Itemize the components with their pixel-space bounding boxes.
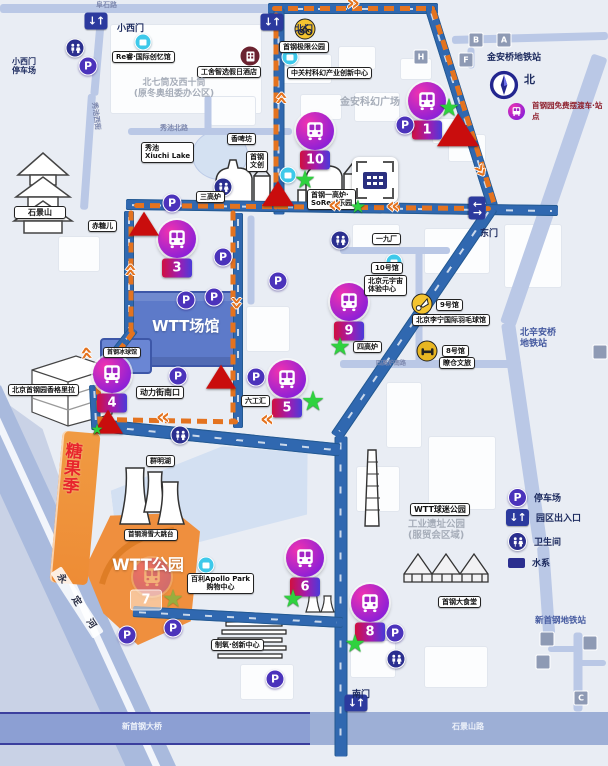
- chimney-sketch: [362, 448, 382, 532]
- legend-label: 停车场: [534, 491, 561, 504]
- info-icon: [135, 34, 152, 51]
- parking-icon: P: [214, 248, 233, 267]
- star-marker: ★: [344, 630, 366, 658]
- gate-icon-东门: ↓↑: [469, 197, 486, 220]
- badminton-icon: [412, 294, 433, 315]
- shougang-park-shuttle-map: P 停车场 ↓↑ 园区出入口 卫生间 水系 首钢园免费摆渡车·站点 北 阜石路小…: [0, 0, 608, 766]
- parking-icon: P: [164, 619, 183, 638]
- shuttle-bus-icon: [508, 103, 525, 120]
- parking-icon: P: [508, 488, 527, 507]
- map-label: 瞭仓文旅: [439, 357, 475, 369]
- map-label: 首钢 文创: [246, 151, 268, 172]
- shuttle-stop-badge-7-faded: 7: [130, 590, 162, 611]
- gate-label: 东门: [480, 229, 498, 240]
- shuttle-stop-3: [158, 220, 196, 258]
- restroom-icon: [66, 39, 85, 58]
- building-block: [58, 236, 100, 272]
- map-label: 中关村科幻产业创新中心: [287, 67, 372, 79]
- map-label: 新首钢地铁站: [535, 616, 586, 626]
- subway-exit-F: F: [459, 53, 474, 68]
- map-label: 首钢冰球馆: [103, 347, 141, 358]
- legend-label: 水系: [532, 556, 550, 569]
- map-label: 首钢滑雪大跳台: [124, 529, 178, 541]
- shuttle-route: [274, 13, 279, 210]
- parking-icon: P: [163, 194, 182, 213]
- shuttle-route: [231, 211, 236, 424]
- map-label: 北七筒及西十筒 (原冬奥组委办公区): [118, 78, 230, 99]
- subway-exit-unmarked: [583, 636, 598, 651]
- restroom-icon: [331, 231, 350, 250]
- gate-icon-小西门: ↓↑: [85, 13, 108, 30]
- legend-row-parking: P 停车场: [508, 488, 561, 507]
- route-arrow-icon: »: [388, 195, 400, 217]
- gate-icon-北门: ↓↑: [261, 14, 284, 31]
- star-marker: ★: [162, 585, 184, 613]
- map-label: 金安桥地铁站: [487, 53, 541, 64]
- shuttle-legend-label: 首钢园免费摆渡车·站点: [532, 100, 608, 122]
- star-marker: ★: [91, 422, 104, 438]
- map-label: 10号馆: [371, 262, 403, 274]
- building-block: [428, 436, 496, 510]
- shuttle-stop-badge-3: 3: [162, 259, 192, 278]
- parking-icon: P: [266, 670, 285, 689]
- gate-icon: ↓↑: [506, 509, 529, 526]
- parking-icon: P: [396, 116, 415, 135]
- map-label: 赤糖儿: [88, 220, 117, 232]
- legend-label: 卫生间: [534, 535, 561, 548]
- map-label: 香啤坊: [227, 133, 256, 145]
- map-label: 小西门 停车场: [12, 57, 36, 76]
- gym-icon: [417, 341, 438, 362]
- legend-row-shuttle: 首钢园免费摆渡车·站点: [508, 100, 608, 122]
- route-arrow-icon: »: [225, 296, 247, 308]
- map-label: 北辛安桥 地铁站: [520, 328, 556, 349]
- restroom-icon: [387, 650, 406, 669]
- road: [548, 646, 580, 652]
- map-label: 工业遗址公园 (服贸会区域): [408, 519, 465, 541]
- star-marker: ★: [282, 585, 304, 613]
- subway-exit-B: B: [469, 33, 484, 48]
- parking-icon: P: [205, 288, 224, 307]
- water-icon: [508, 558, 525, 568]
- map-label: 北京李宁国际羽毛球馆: [412, 314, 490, 326]
- road: [248, 216, 255, 305]
- map-label: 北京元宇宙 体验中心: [364, 275, 407, 296]
- subway-exit-unmarked: [536, 655, 551, 670]
- shuttle-stop-6: [286, 539, 324, 577]
- subway-exit-C: C: [574, 691, 589, 706]
- hotel-icon: [240, 46, 261, 67]
- shuttle-stop-4: [93, 355, 131, 393]
- map-label: 金安科幻广场: [340, 97, 400, 109]
- restroom-icon: [508, 532, 527, 551]
- map-label: WTT场馆: [152, 318, 219, 336]
- tents-sketch: [402, 546, 502, 590]
- map-label: Re睿·国际创忆馆: [112, 51, 175, 63]
- gate-label: 南门: [352, 690, 370, 701]
- route-arrow-icon: »: [330, 194, 342, 216]
- towers-sketch: [114, 432, 194, 530]
- road: [205, 96, 212, 134]
- alert-triangle-marker: [262, 181, 294, 206]
- gate-label: 小西门: [117, 24, 144, 35]
- subway-exit-unmarked: [593, 345, 608, 360]
- map-label: 8号馆: [442, 345, 469, 357]
- building-block: [386, 382, 422, 448]
- legend-row-water: 水系: [508, 556, 550, 569]
- map-label: 秀池北路: [160, 124, 188, 132]
- map-label: 四高炉: [353, 341, 382, 353]
- parking-icon: P: [247, 368, 266, 387]
- parking-icon: P: [177, 291, 196, 310]
- parking-icon: P: [118, 626, 137, 645]
- route-arrow-icon: »: [158, 406, 170, 428]
- map-label: WTT球迷公园: [410, 503, 470, 516]
- shuttle-stop-9: [330, 283, 368, 321]
- map-label: 工舍智选假日酒店: [197, 66, 261, 78]
- star-marker: ★: [294, 166, 316, 194]
- pagoda-sketch: [10, 145, 76, 239]
- parking-icon: P: [79, 57, 98, 76]
- shuttle-stop-10: [296, 112, 334, 150]
- parking-icon: P: [386, 624, 405, 643]
- road: [340, 360, 521, 368]
- map-label: 首钢极限公园: [279, 41, 329, 53]
- subway-exit-unmarked: [540, 632, 555, 647]
- road: [578, 660, 606, 666]
- map-label: 动力街南口: [136, 386, 184, 399]
- route-arrow-icon: »: [262, 408, 274, 430]
- star-marker: ★: [301, 386, 325, 417]
- route-arrow-icon: »: [120, 265, 142, 277]
- map-label: 北京首钢园香格里拉: [8, 384, 79, 396]
- star-marker: ★: [350, 196, 366, 217]
- subway-exit-A: A: [497, 33, 512, 48]
- restroom-icon: [171, 426, 190, 445]
- route-arrow-icon: »: [76, 347, 99, 361]
- map-label: 阜石路: [96, 1, 117, 9]
- shuttle-stop-8: [351, 584, 389, 622]
- map-label: 9号馆: [436, 299, 463, 311]
- road: [0, 4, 270, 13]
- legend-row-restroom: 卫生间: [508, 532, 561, 551]
- star-marker: ★: [329, 333, 351, 361]
- building-block: [424, 646, 488, 688]
- map-label: WTT公园: [112, 556, 184, 575]
- map-label: 石景山: [14, 206, 66, 219]
- map-label: 制氧·创新中心: [211, 639, 264, 651]
- route-arrow-icon: »: [346, 0, 358, 15]
- shuttle-stop-badge-5: 5: [272, 399, 302, 418]
- map-label: 秀池 Xiuchi Lake: [141, 142, 194, 163]
- compass-north-label: 北: [524, 74, 535, 87]
- map-label: 群明湖: [146, 455, 175, 467]
- building-block: [210, 96, 256, 126]
- building-block: [246, 306, 290, 352]
- route-arrow-icon: »: [271, 93, 293, 105]
- map-label: 六工汇: [241, 395, 270, 407]
- compass: [489, 70, 519, 104]
- star-marker: ★: [438, 94, 460, 122]
- map-label: 石景山路: [452, 722, 484, 731]
- parking-icon: P: [169, 367, 188, 386]
- legend-label: 园区出入口: [536, 511, 581, 524]
- map-label: 三高炉: [196, 191, 225, 203]
- alert-triangle-marker: [206, 365, 236, 389]
- parking-icon: P: [269, 272, 288, 291]
- map-label: 一九厂: [372, 233, 401, 245]
- map-label: 四高炉南路: [376, 360, 406, 367]
- gate-label: 北门: [295, 25, 313, 36]
- subway-exit-H: H: [414, 50, 429, 65]
- alert-triangle-marker: [129, 212, 159, 236]
- map-label: 新首钢大桥: [122, 722, 162, 731]
- map-label: 首钢大食堂: [438, 596, 481, 608]
- info-icon: [198, 557, 215, 574]
- legend-row-gate: ↓↑ 园区出入口: [506, 509, 581, 526]
- map-label: 百利Apollo Park 购物中心: [187, 573, 254, 594]
